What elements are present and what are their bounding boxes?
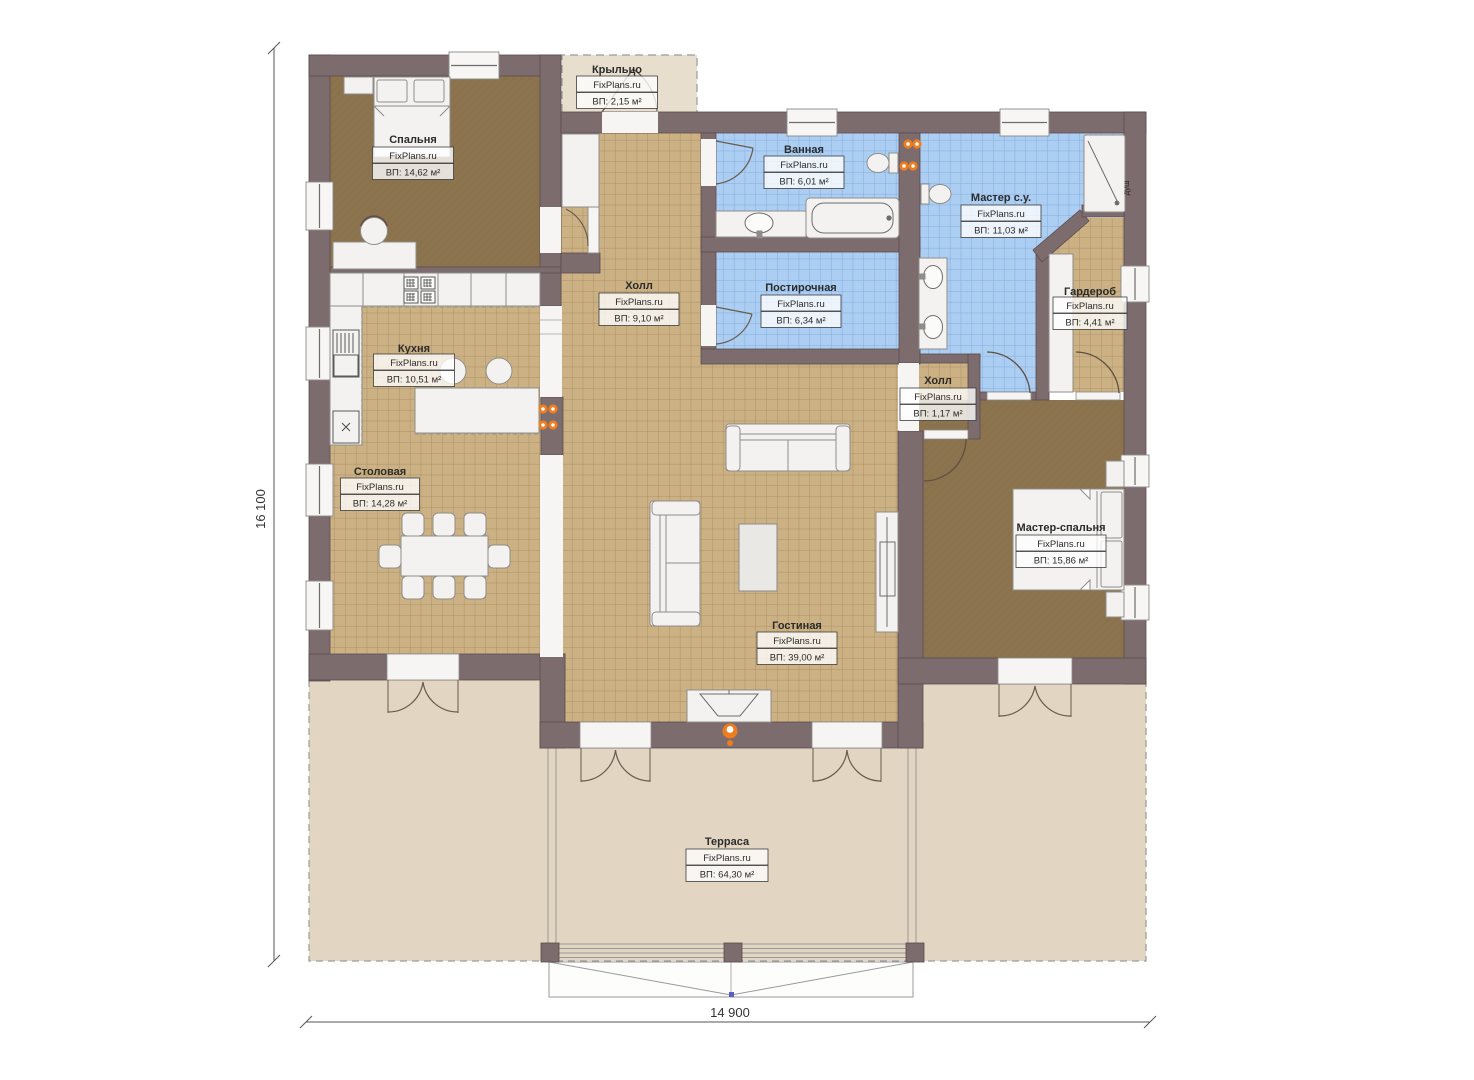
svg-text:ВП: 14,28 м²: ВП: 14,28 м² [353, 499, 408, 510]
svg-text:FixPlans.ru: FixPlans.ru [777, 299, 825, 310]
svg-text:Гардероб: Гардероб [1064, 286, 1116, 298]
svg-text:Холл: Холл [625, 280, 653, 292]
svg-text:Спальня: Спальня [389, 134, 437, 146]
svg-text:Гостиная: Гостиная [772, 620, 822, 632]
svg-text:ВП: 4,41 м²: ВП: 4,41 м² [1065, 318, 1114, 329]
svg-text:ВП: 39,00 м²: ВП: 39,00 м² [770, 653, 825, 664]
svg-text:ВП: 9,10 м²: ВП: 9,10 м² [614, 314, 663, 325]
svg-text:Столовая: Столовая [354, 466, 406, 478]
svg-text:ВП: 2,15 м²: ВП: 2,15 м² [592, 97, 641, 108]
svg-text:FixPlans.ru: FixPlans.ru [356, 482, 404, 493]
svg-text:FixPlans.ru: FixPlans.ru [593, 80, 641, 91]
svg-text:ВП: 15,86 м²: ВП: 15,86 м² [1034, 556, 1089, 567]
svg-text:FixPlans.ru: FixPlans.ru [389, 151, 437, 162]
svg-text:FixPlans.ru: FixPlans.ru [390, 358, 438, 369]
svg-text:ВП: 6,34 м²: ВП: 6,34 м² [776, 316, 825, 327]
svg-text:FixPlans.ru: FixPlans.ru [703, 853, 751, 864]
svg-text:FixPlans.ru: FixPlans.ru [914, 392, 962, 403]
svg-text:FixPlans.ru: FixPlans.ru [615, 297, 663, 308]
svg-text:FixPlans.ru: FixPlans.ru [977, 209, 1025, 220]
svg-text:ВП: 64,30 м²: ВП: 64,30 м² [700, 870, 755, 881]
svg-text:Холл: Холл [924, 375, 952, 387]
svg-text:FixPlans.ru: FixPlans.ru [780, 160, 828, 171]
svg-text:ВП: 10,51 м²: ВП: 10,51 м² [387, 375, 442, 386]
svg-text:14 900: 14 900 [710, 1005, 750, 1020]
svg-text:Кухня: Кухня [398, 343, 430, 355]
svg-text:ВП: 11,03 м²: ВП: 11,03 м² [974, 226, 1028, 237]
svg-text:ВП: 14,62 м²: ВП: 14,62 м² [386, 168, 441, 179]
svg-text:Мастер с.у.: Мастер с.у. [971, 192, 1031, 204]
svg-text:Мастер-спальня: Мастер-спальня [1016, 522, 1105, 534]
svg-text:Ванная: Ванная [784, 144, 824, 156]
svg-text:ВП: 1,17 м²: ВП: 1,17 м² [913, 409, 962, 420]
svg-text:FixPlans.ru: FixPlans.ru [1066, 301, 1114, 312]
svg-text:FixPlans.ru: FixPlans.ru [1037, 539, 1085, 550]
svg-text:16 100: 16 100 [253, 489, 268, 529]
svg-text:душ: душ [1122, 180, 1131, 195]
svg-text:Терраса: Терраса [705, 836, 750, 848]
svg-text:FixPlans.ru: FixPlans.ru [773, 636, 821, 647]
svg-text:ВП: 6,01 м²: ВП: 6,01 м² [779, 177, 828, 188]
svg-text:Постирочная: Постирочная [765, 282, 836, 294]
svg-text:Крыльцо: Крыльцо [592, 64, 642, 76]
